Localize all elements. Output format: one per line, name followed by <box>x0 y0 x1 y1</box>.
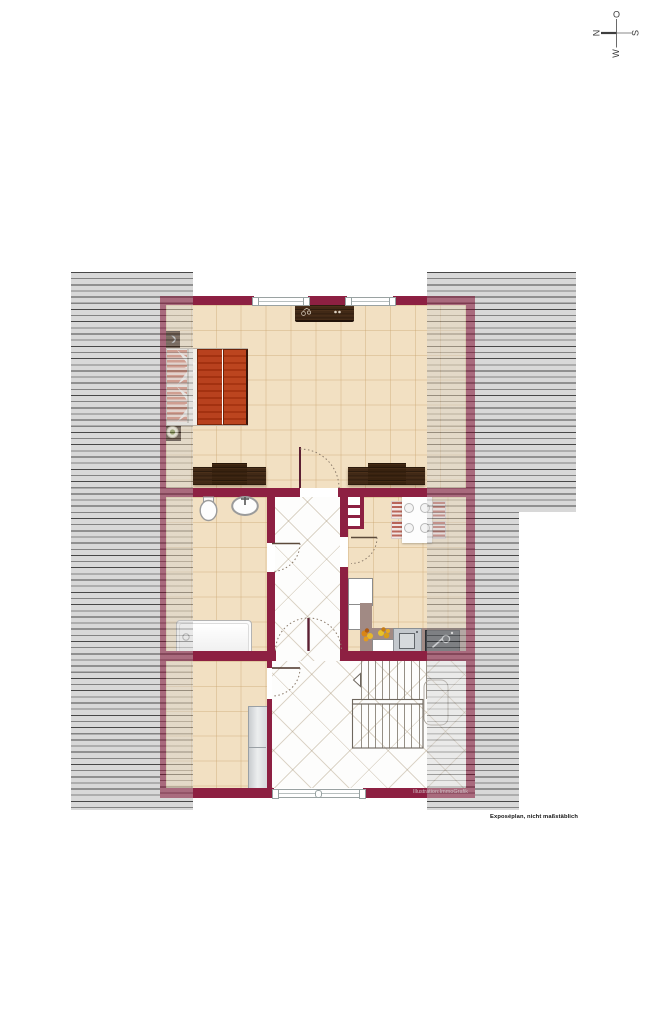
svg-text:S: S <box>630 30 640 36</box>
svg-text:O: O <box>613 10 620 20</box>
svg-text:N: N <box>591 30 601 37</box>
svg-text:W: W <box>611 49 621 58</box>
